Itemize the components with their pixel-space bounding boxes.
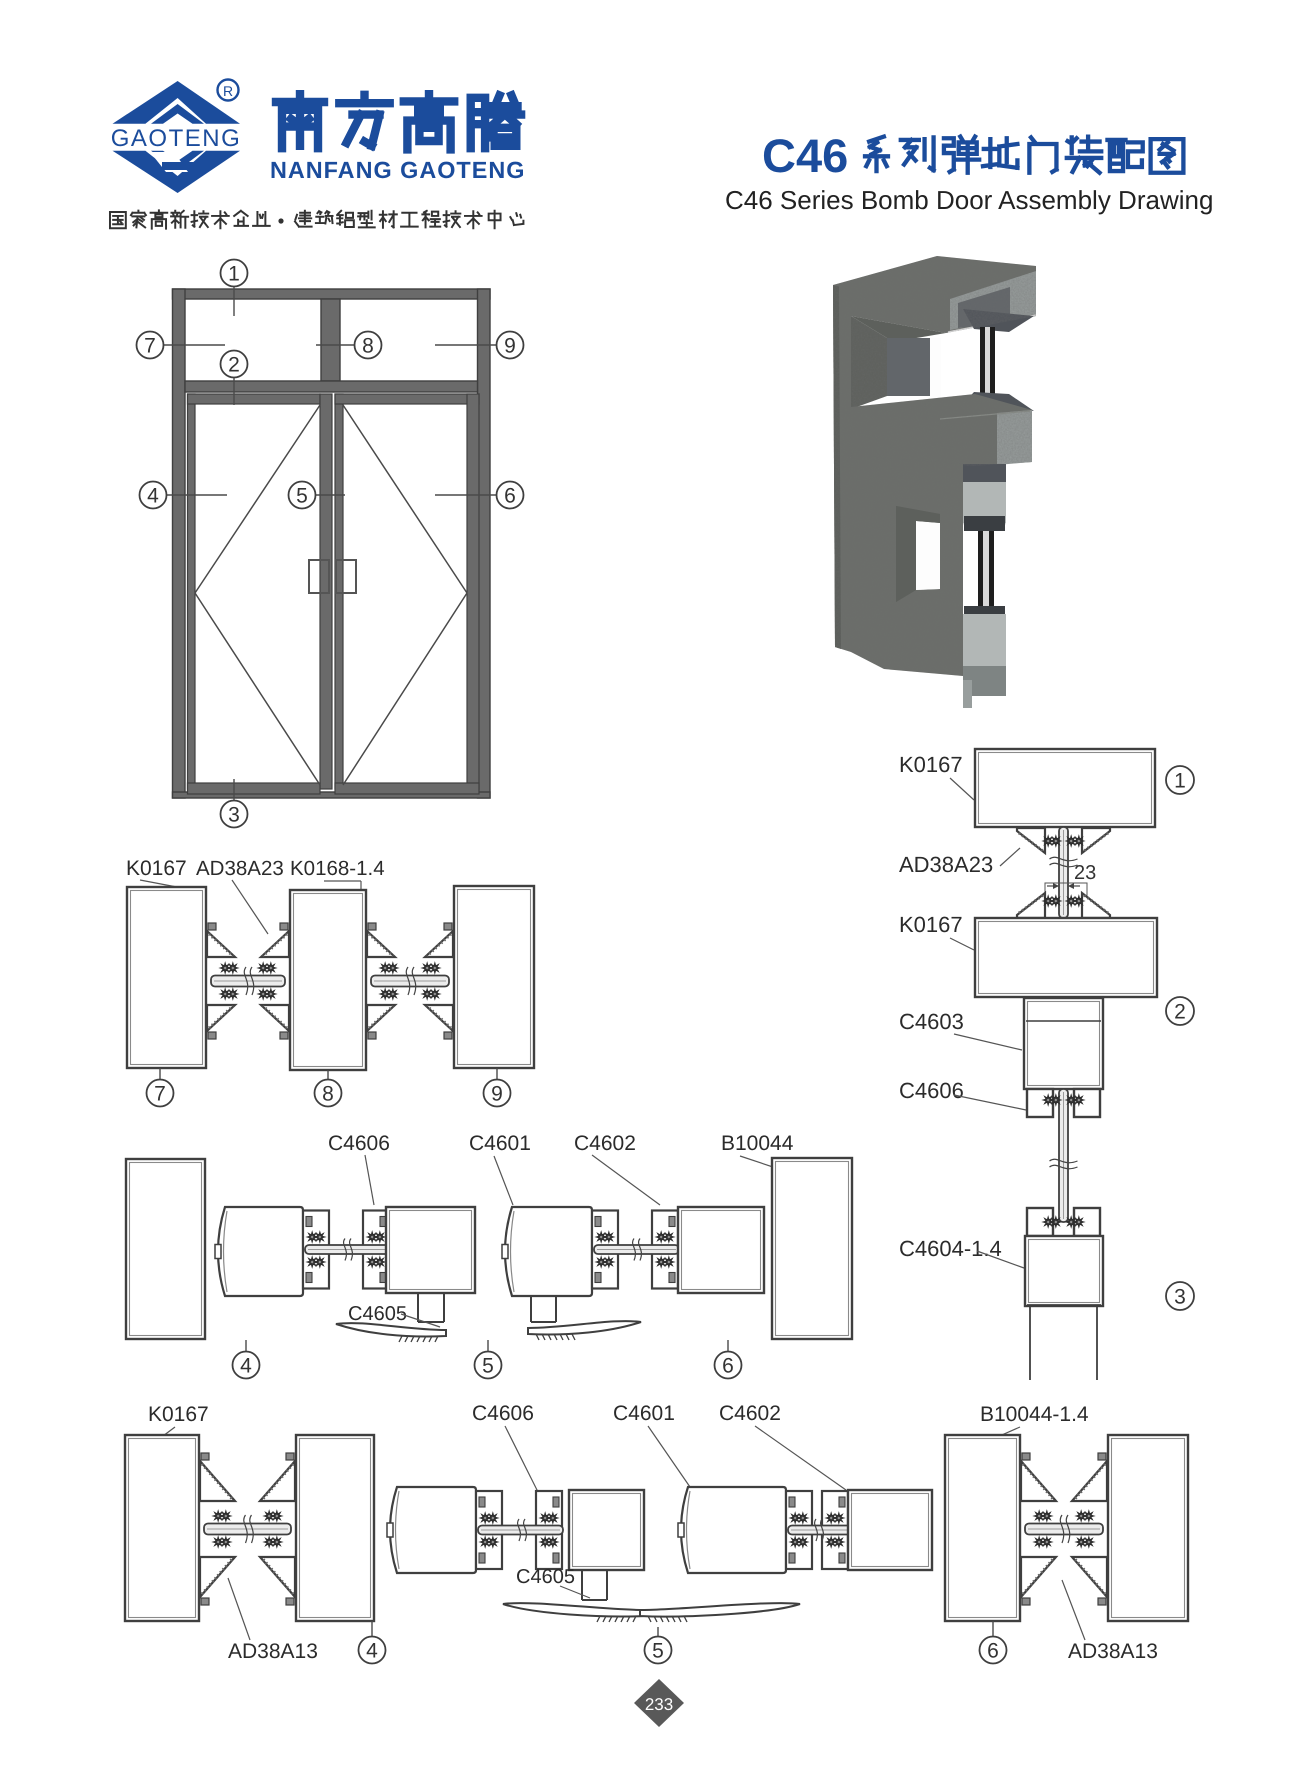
svg-text:4: 4 [240, 1355, 252, 1378]
svg-text:AD38A23: AD38A23 [899, 852, 993, 877]
svg-text:8: 8 [322, 1083, 334, 1106]
svg-text:9: 9 [491, 1083, 503, 1106]
svg-text:K0167: K0167 [899, 912, 963, 937]
svg-text:C46 Series Bomb Door Assembly: C46 Series Bomb Door Assembly Drawing [725, 185, 1213, 215]
svg-text:C4602: C4602 [574, 1132, 636, 1155]
svg-text:5: 5 [296, 485, 308, 508]
svg-text:C4605: C4605 [348, 1303, 407, 1325]
svg-text:NANFANG GAOTENG: NANFANG GAOTENG [270, 157, 525, 183]
svg-text:AD38A13: AD38A13 [1068, 1640, 1158, 1663]
svg-text:C4601: C4601 [613, 1402, 675, 1425]
svg-text:7: 7 [154, 1083, 166, 1106]
svg-text:4: 4 [366, 1640, 378, 1663]
svg-text:C4606: C4606 [472, 1402, 534, 1425]
svg-text:GAOTENG: GAOTENG [111, 125, 242, 152]
svg-text:2: 2 [228, 354, 240, 377]
svg-text:6: 6 [987, 1640, 999, 1663]
svg-text:233: 233 [645, 1695, 673, 1714]
svg-text:K0167: K0167 [148, 1403, 209, 1426]
svg-text:4: 4 [147, 485, 159, 508]
svg-text:R: R [223, 83, 233, 99]
svg-text:1: 1 [1174, 770, 1186, 793]
svg-text:C4606: C4606 [899, 1078, 964, 1103]
svg-text:6: 6 [722, 1355, 734, 1378]
svg-text:7: 7 [144, 335, 156, 358]
svg-text:B10044: B10044 [721, 1132, 794, 1155]
svg-text:9: 9 [504, 335, 516, 358]
svg-text:C4605: C4605 [516, 1566, 575, 1588]
svg-text:K0167: K0167 [899, 752, 963, 777]
svg-text:AD38A13: AD38A13 [228, 1640, 318, 1663]
svg-text:8: 8 [362, 335, 374, 358]
svg-text:C4603: C4603 [899, 1009, 964, 1034]
svg-text:1: 1 [228, 263, 240, 286]
svg-text:B10044-1.4: B10044-1.4 [980, 1403, 1089, 1426]
svg-text:5: 5 [652, 1640, 664, 1663]
svg-text:C4606: C4606 [328, 1132, 390, 1155]
svg-text:K0168-1.4: K0168-1.4 [290, 857, 385, 880]
svg-text:C4601: C4601 [469, 1132, 531, 1155]
svg-text:C46: C46 [762, 129, 848, 182]
svg-text:3: 3 [228, 804, 240, 827]
svg-text:C4604-1.4: C4604-1.4 [899, 1236, 1002, 1261]
svg-text:5: 5 [482, 1355, 494, 1378]
svg-text:3: 3 [1174, 1286, 1186, 1309]
svg-text:K0167: K0167 [126, 857, 187, 880]
svg-text:C4602: C4602 [719, 1402, 781, 1425]
svg-text:AD38A23: AD38A23 [196, 857, 284, 880]
svg-text:6: 6 [504, 485, 516, 508]
svg-text:2: 2 [1174, 1001, 1186, 1024]
svg-text:23: 23 [1074, 862, 1096, 884]
